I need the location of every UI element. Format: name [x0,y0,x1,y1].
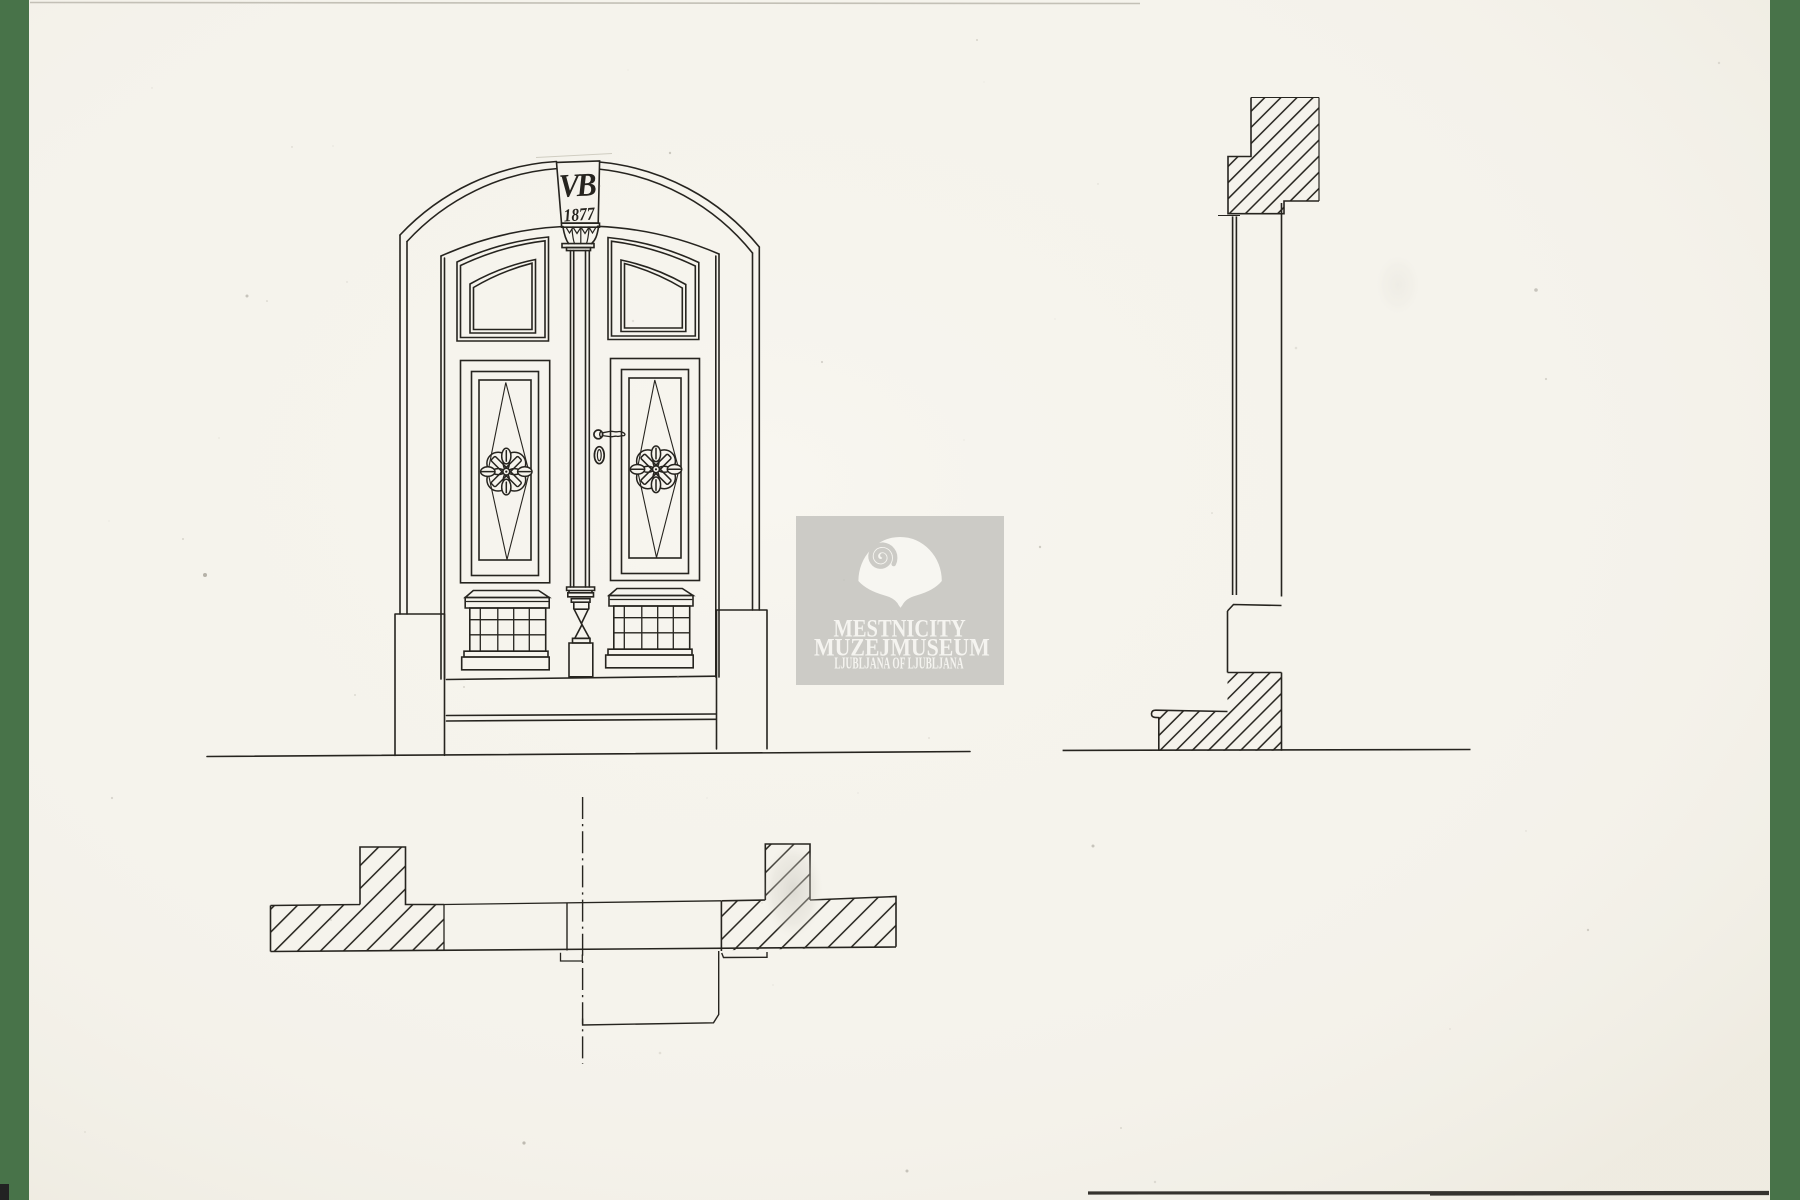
svg-text:1877: 1877 [563,203,596,225]
svg-text:LJUBLJANA OF LJUBLJANA: LJUBLJANA OF LJUBLJANA [834,653,963,672]
svg-text:VB: VB [558,167,597,205]
